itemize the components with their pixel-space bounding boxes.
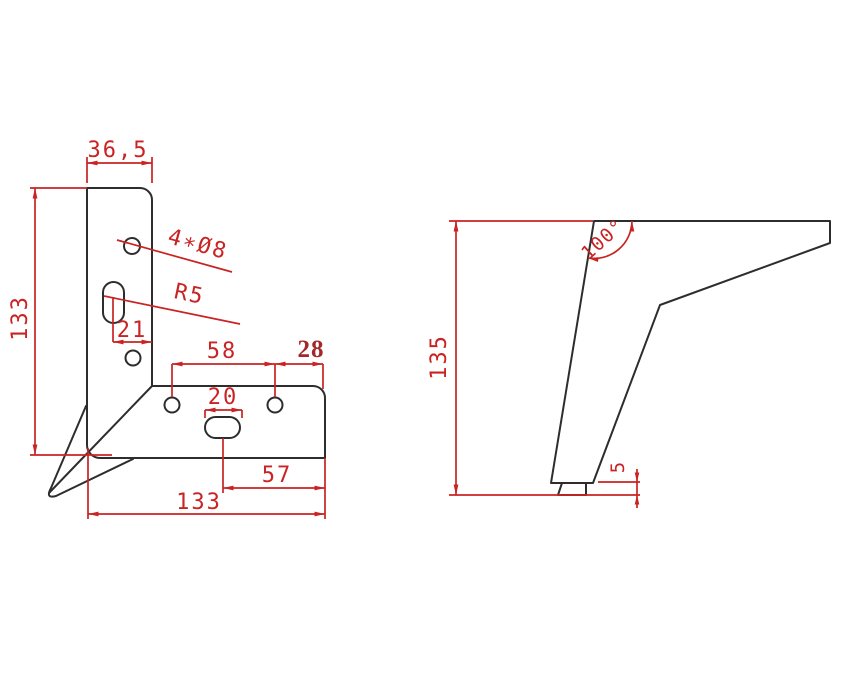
dim-holes-callout: 4∗Ø8	[165, 225, 230, 265]
dim-slot-width: 20	[208, 385, 239, 410]
hole-mid	[126, 351, 141, 366]
furniture-leg-blueprint: 36,5 133 4∗Ø8 R5 21 58 28 20 57 133	[0, 0, 845, 678]
slot-horizontal	[205, 417, 240, 438]
ext-line	[30, 188, 112, 455]
dim-slot-radius: R5	[172, 279, 207, 310]
corner-gusset-fold-line	[49, 386, 152, 493]
dim-foot-height: 5	[607, 461, 629, 473]
dim-front-top-width: 36,5	[88, 138, 149, 163]
dim-hole-edge-offset: 28	[298, 336, 325, 363]
dim-front-left-height: 133	[8, 295, 33, 341]
hole-arm-right	[268, 398, 283, 413]
dim-slot-offset: 21	[117, 318, 148, 343]
ext-line	[172, 364, 323, 397]
dim-hole-spacing: 58	[207, 339, 238, 364]
front-view-dimensions: 36,5 133 4∗Ø8 R5 21 58 28 20 57 133	[8, 138, 325, 519]
ext-line	[449, 221, 640, 495]
dim-front-bottom-width: 133	[176, 490, 222, 515]
leg-foot-pad	[558, 483, 586, 495]
hole-arm-left	[165, 398, 180, 413]
dim-side-height: 135	[427, 334, 452, 380]
dim-slot-to-edge: 57	[262, 463, 293, 488]
arrowhead-up	[635, 495, 640, 505]
arrowhead-down	[635, 473, 640, 483]
side-view-dimensions: 135 100° 5	[427, 215, 640, 508]
technical-drawing-canvas: 36,5 133 4∗Ø8 R5 21 58 28 20 57 133	[0, 0, 845, 678]
